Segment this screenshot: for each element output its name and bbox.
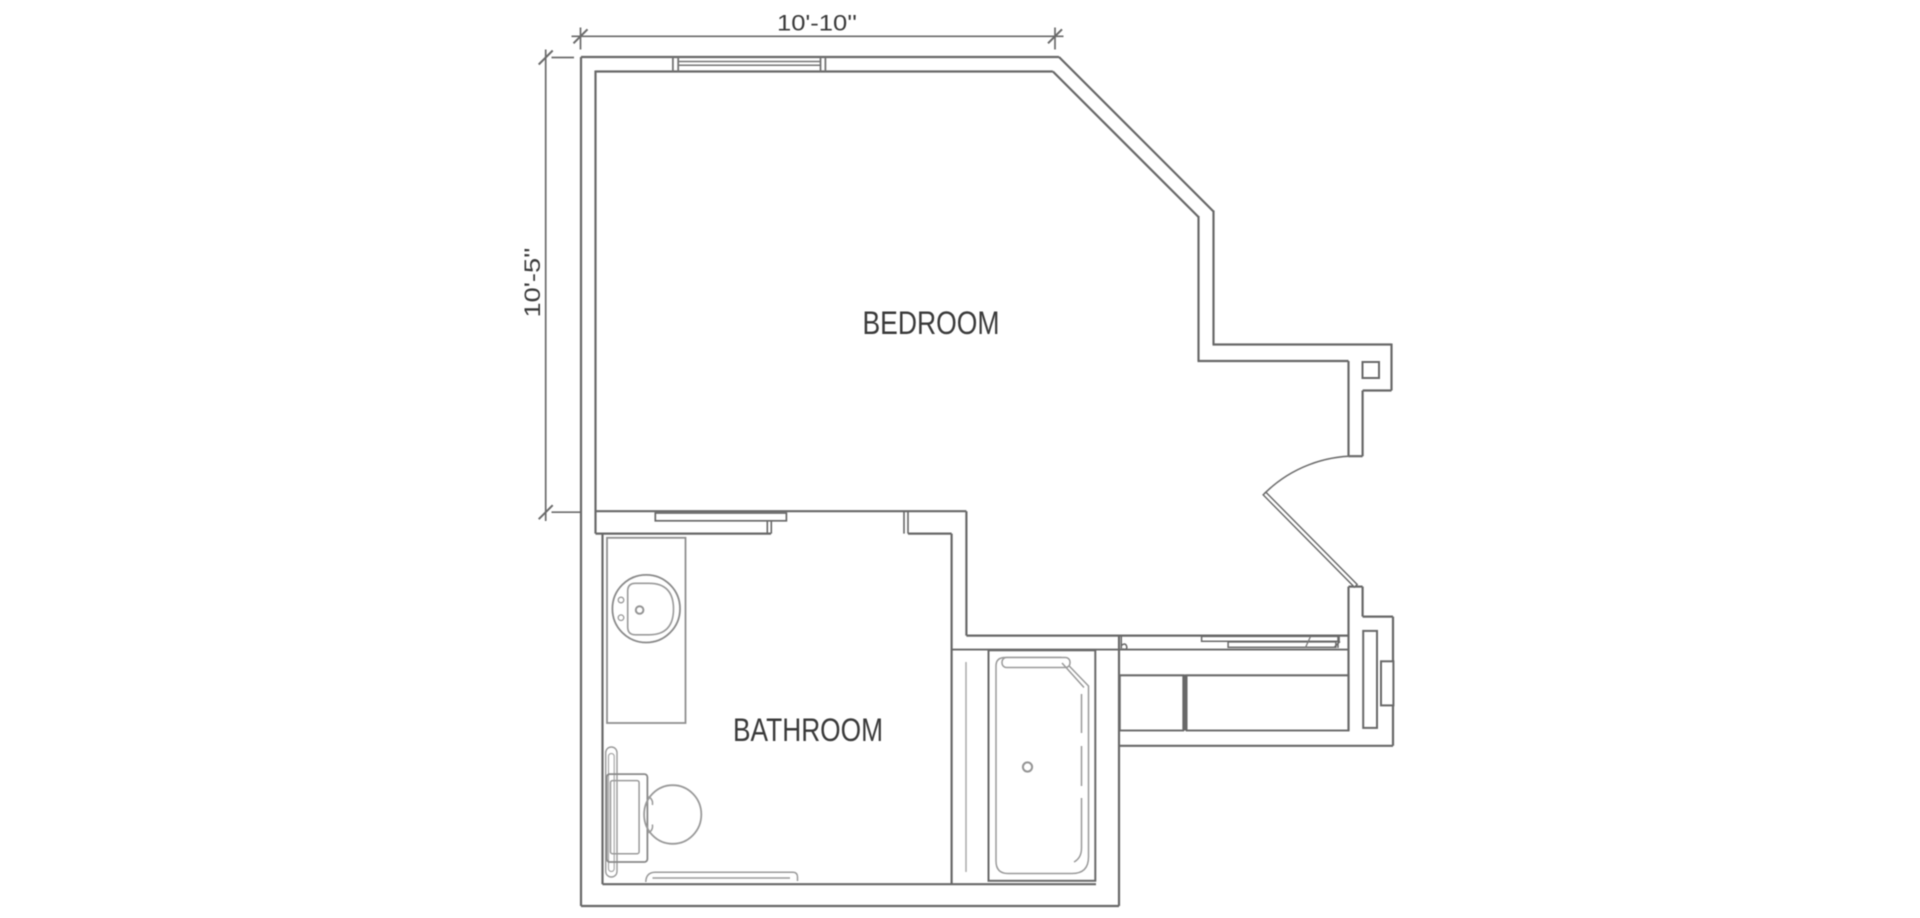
svg-text:10'-10'': 10'-10'' xyxy=(777,11,857,36)
svg-text:BEDROOM: BEDROOM xyxy=(863,305,1000,341)
svg-text:BATHROOM: BATHROOM xyxy=(733,712,883,748)
svg-text:10'-5'': 10'-5'' xyxy=(520,248,545,318)
